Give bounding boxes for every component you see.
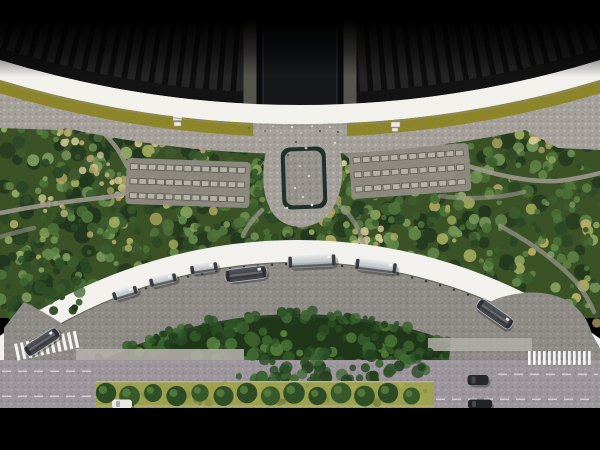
median-tree [191,384,208,401]
street-median [96,381,434,407]
aerial-campus-rendering [0,0,600,450]
median-tree [237,383,258,404]
table-pad [125,158,251,208]
plaza-cart [174,122,181,126]
car [468,375,491,388]
letterbox-bottom [0,408,600,450]
median-tree [283,382,305,404]
median-tree [166,386,186,406]
aerial-scene-svg [0,0,600,450]
median-tree [354,386,375,407]
roof-top-fade [0,19,600,77]
median-tree [261,386,280,405]
median-tree [214,386,234,406]
scene-content [0,0,600,450]
plaza-cart [392,128,398,132]
shuttle-bus [287,253,339,271]
median-tree [144,384,162,402]
sidewalk [76,349,244,361]
plaza-cart [391,122,400,127]
median-tree [96,383,116,403]
sidewalk [428,338,532,351]
median-tree [378,383,398,403]
median-tree [403,388,420,405]
median-tree [308,387,326,405]
median-tree [331,383,352,404]
letterbox-top [0,0,600,19]
